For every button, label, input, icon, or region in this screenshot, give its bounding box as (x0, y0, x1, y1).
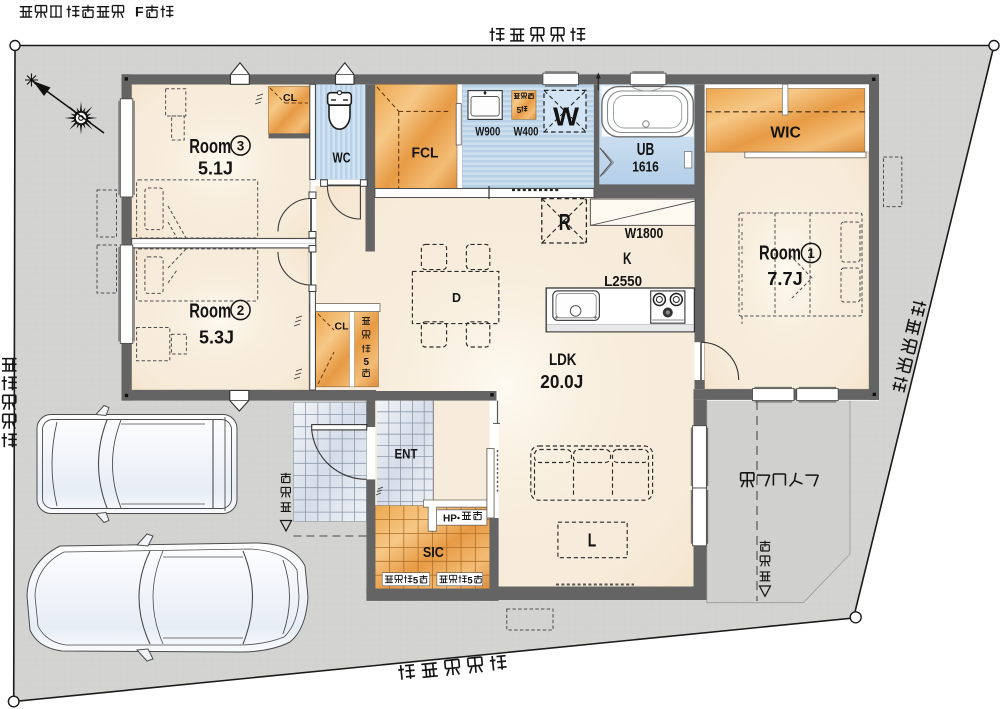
svg-text:Room: Room (189, 301, 231, 323)
svg-text:5: 5 (467, 576, 473, 587)
svg-text:W: W (553, 102, 579, 132)
svg-text:2: 2 (237, 303, 245, 318)
svg-text:LDK: LDK (549, 350, 577, 369)
svg-text:L2550: L2550 (604, 274, 642, 290)
svg-text:Room: Room (759, 243, 801, 265)
svg-text:W1800: W1800 (625, 226, 664, 242)
svg-text:5.1J: 5.1J (198, 159, 233, 179)
svg-text:D: D (452, 290, 461, 305)
svg-text:SIC: SIC (423, 545, 444, 561)
svg-text:20.0J: 20.0J (540, 371, 583, 392)
svg-text:5.3J: 5.3J (199, 328, 234, 348)
svg-text:1: 1 (807, 246, 815, 261)
svg-text:3: 3 (237, 138, 245, 153)
svg-text:5: 5 (413, 576, 419, 587)
svg-text:CL: CL (335, 321, 350, 333)
svg-text:1616: 1616 (632, 159, 659, 176)
svg-text:HP: HP (443, 514, 457, 525)
svg-text:7.7J: 7.7J (767, 268, 803, 289)
svg-text:R: R (559, 209, 571, 235)
svg-text:FCL: FCL (412, 146, 439, 162)
svg-text:5: 5 (364, 357, 370, 368)
svg-text:ENT: ENT (395, 446, 418, 462)
svg-text:Room: Room (189, 136, 231, 158)
svg-text:5: 5 (517, 105, 522, 115)
svg-text:L: L (588, 531, 597, 551)
svg-text:K: K (623, 249, 632, 268)
svg-text:CL: CL (283, 92, 298, 104)
svg-text:W400: W400 (514, 125, 539, 139)
svg-text:W900: W900 (475, 125, 500, 139)
svg-text:F: F (135, 4, 144, 20)
svg-text:WC: WC (333, 151, 351, 167)
svg-text:WIC: WIC (770, 124, 801, 141)
svg-text:UB: UB (637, 139, 655, 159)
